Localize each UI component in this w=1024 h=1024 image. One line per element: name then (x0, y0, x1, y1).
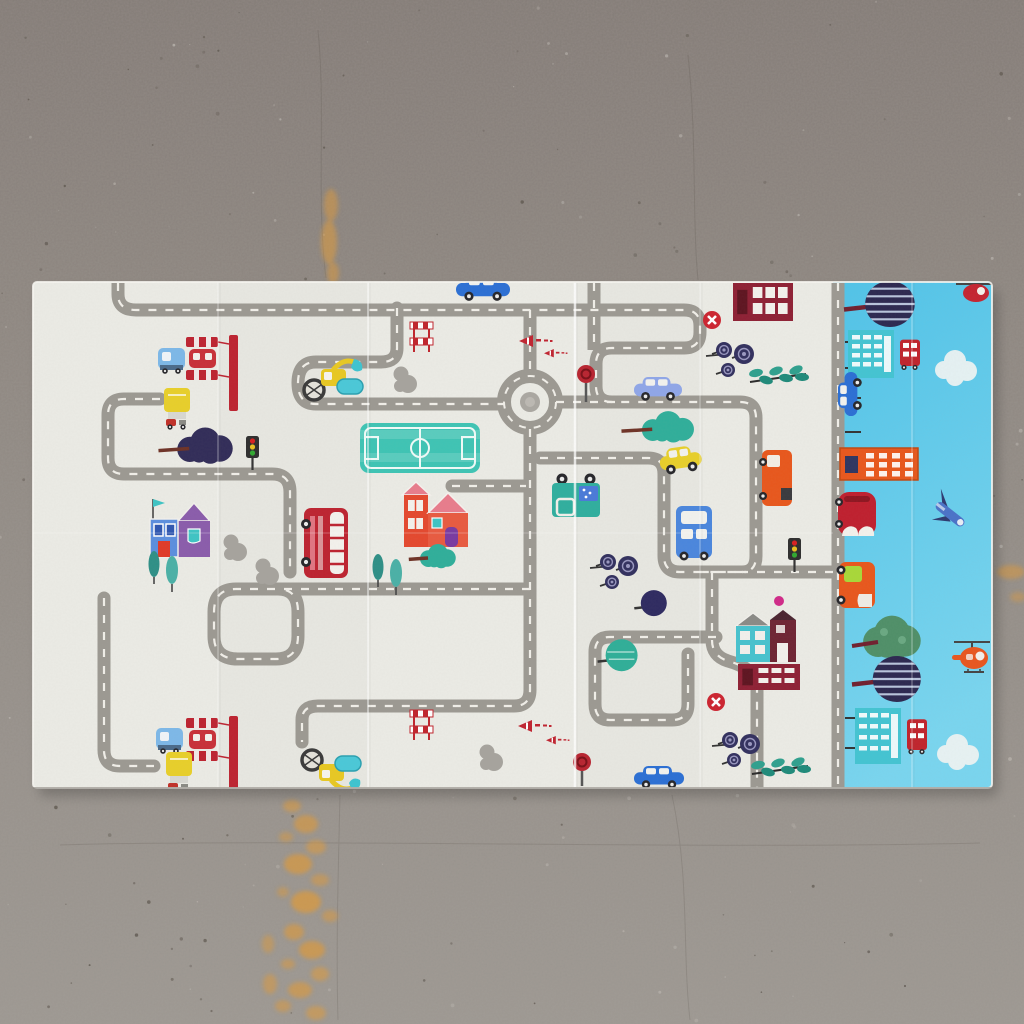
photo-play-mat-scene (0, 0, 1024, 1024)
play-mat-photo (0, 0, 1024, 1024)
photo-grain-overlay (0, 0, 1024, 1024)
